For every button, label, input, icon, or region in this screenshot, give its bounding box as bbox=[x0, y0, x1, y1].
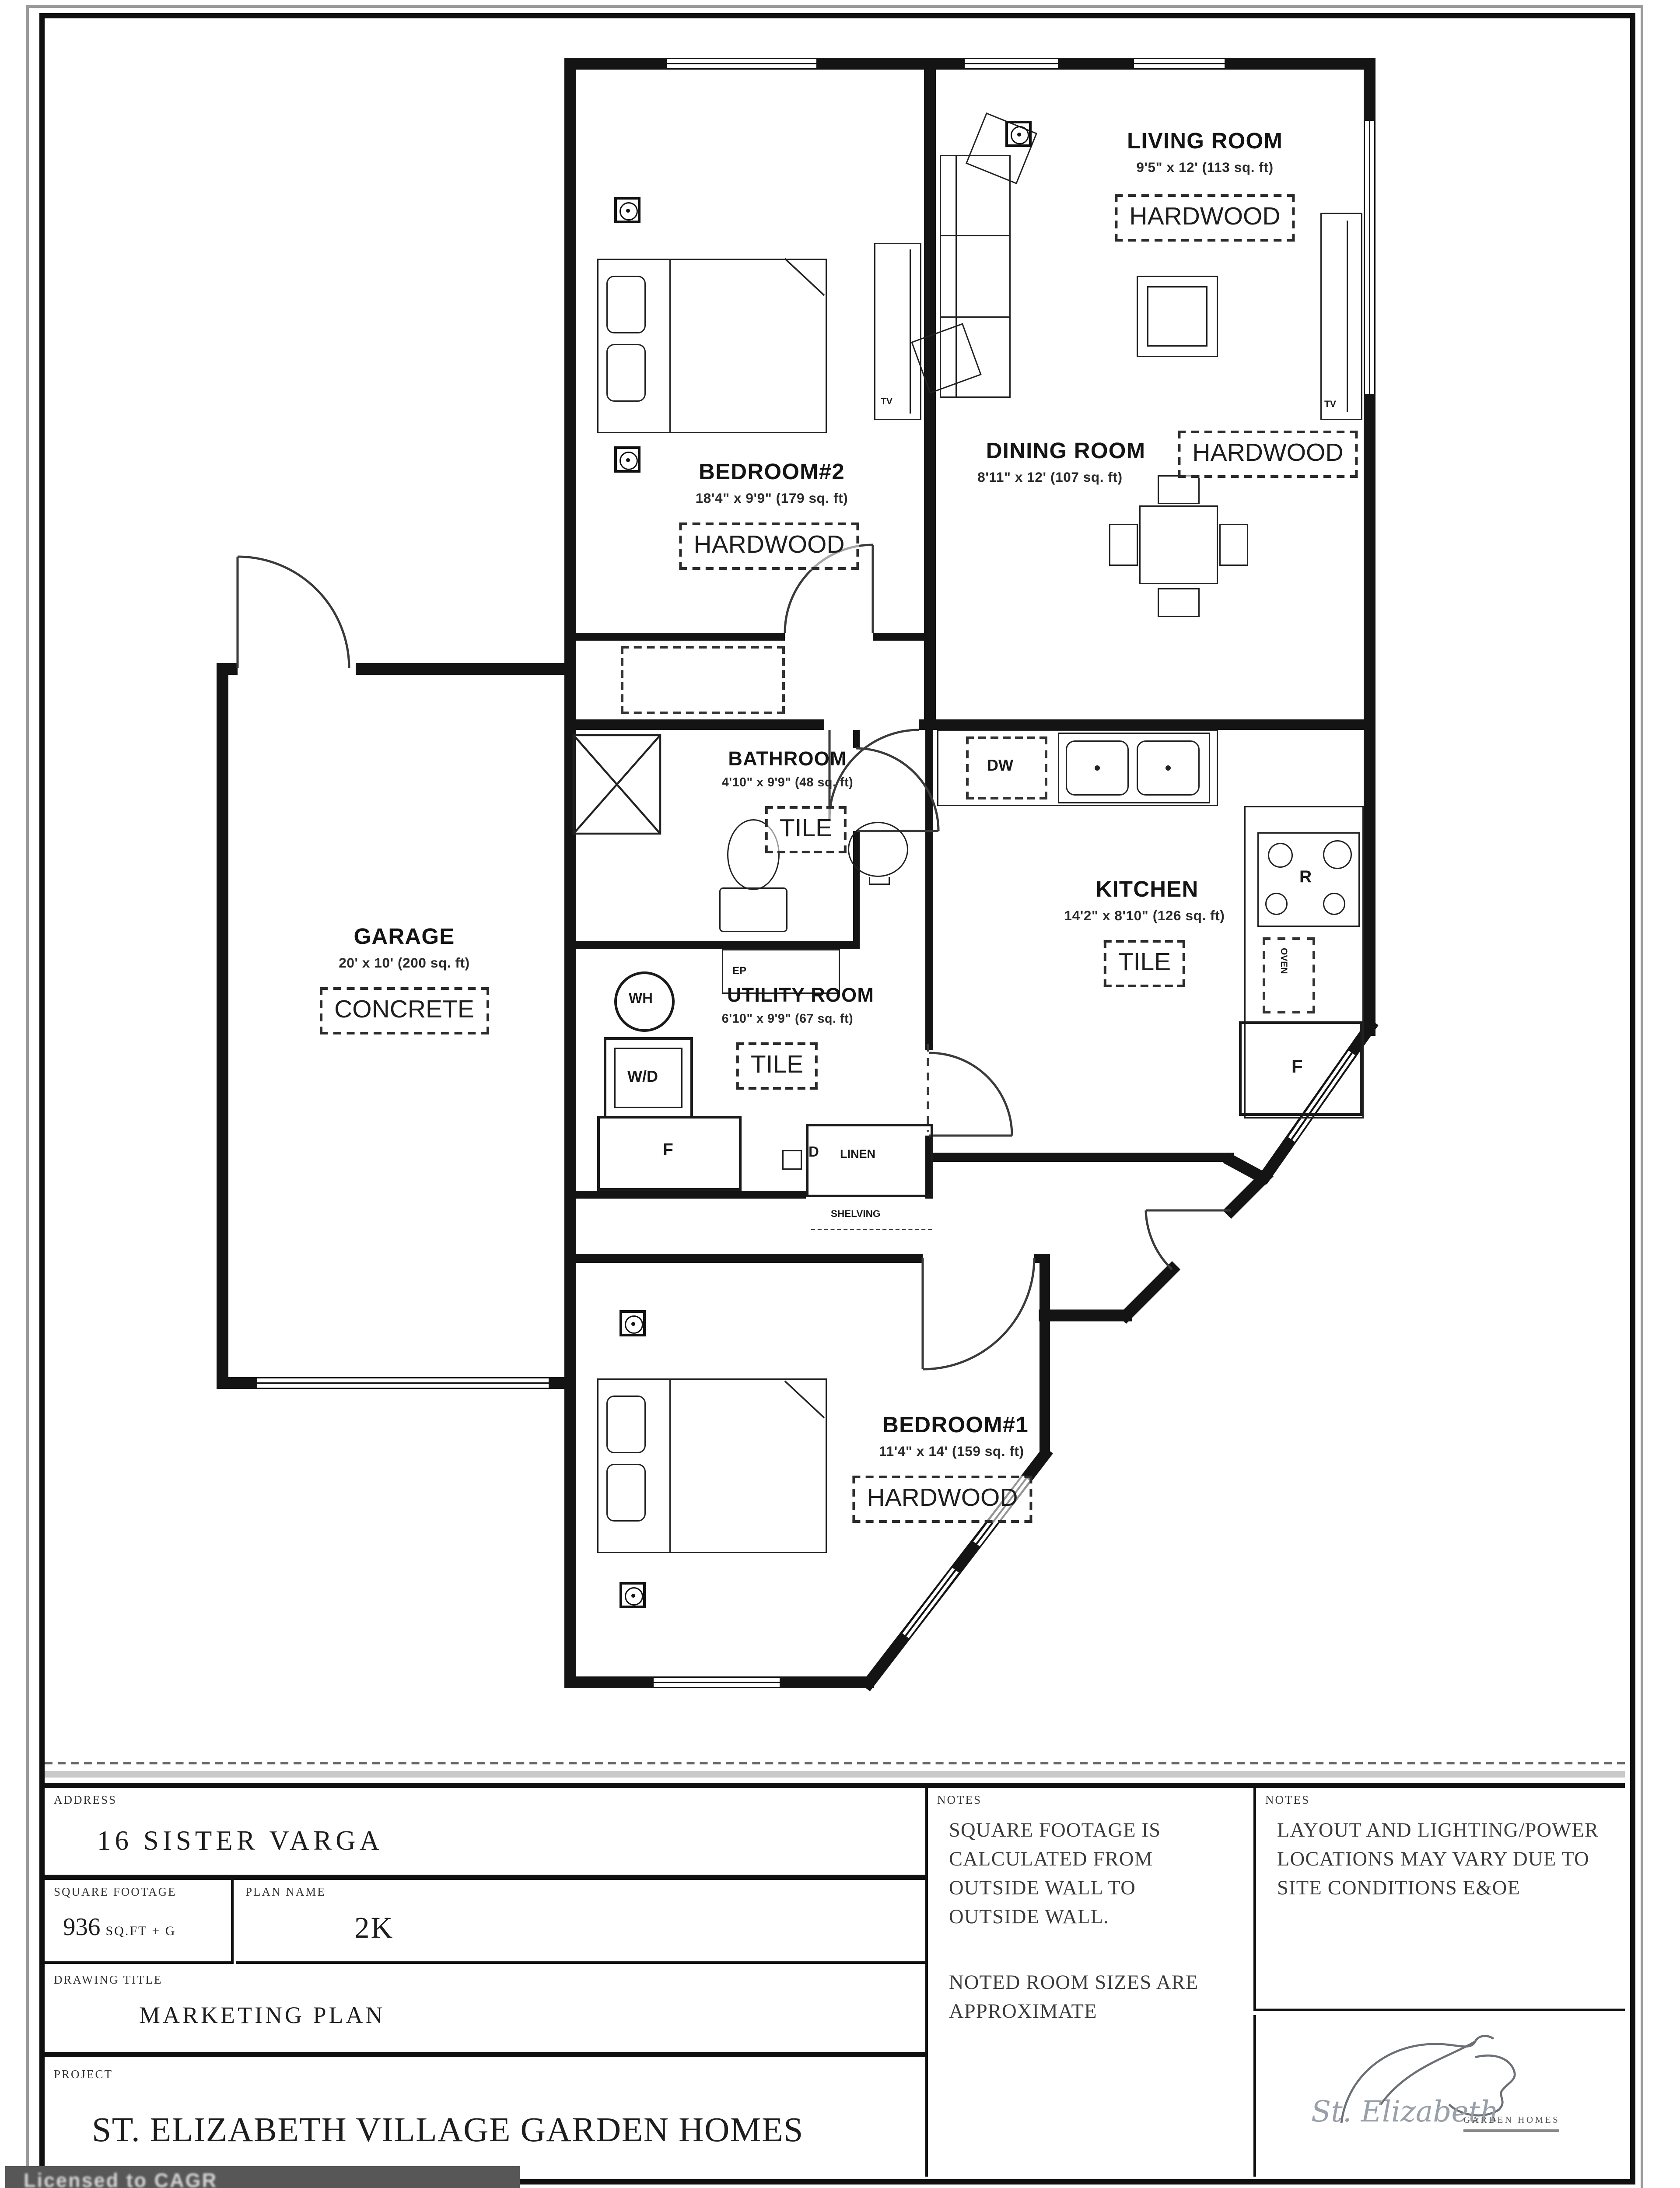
logo-sub: GARDEN HOMES bbox=[1463, 2114, 1560, 2132]
plan-name-cell: PLAN NAME 2K bbox=[236, 1880, 925, 1964]
ceiling-light-icon bbox=[614, 197, 640, 223]
plan-name-label: PLAN NAME bbox=[245, 1885, 326, 1898]
notes2-text: LAYOUT AND LIGHTING/POWER LOCATIONS MAY … bbox=[1277, 1817, 1608, 1904]
coffee-table-inner bbox=[1147, 286, 1207, 347]
room-name-living: LIVING ROOM bbox=[1127, 129, 1283, 155]
room-dims-living: 9'5" x 12' (113 sq. ft) bbox=[1136, 160, 1273, 176]
project-value: ST. ELIZABETH VILLAGE GARDEN HOMES bbox=[92, 2109, 804, 2150]
floor-type-bathroom: TILE bbox=[765, 806, 847, 854]
bath-sink bbox=[848, 822, 908, 877]
floor-type-utility: TILE bbox=[736, 1042, 818, 1090]
bed-line bbox=[669, 259, 671, 433]
ceiling-light-icon bbox=[619, 1582, 646, 1608]
room-dims-bathroom: 4'10" x 9'9" (48 sq. ft) bbox=[722, 776, 854, 790]
closet bbox=[621, 646, 785, 714]
notes1-text-a: SQUARE FOOTAGE IS CALCULATED FROM OUTSID… bbox=[949, 1817, 1227, 1932]
ceiling-light-icon bbox=[1005, 121, 1032, 147]
notes-cell-2: NOTES LAYOUT AND LIGHTING/POWER LOCATION… bbox=[1253, 1788, 1625, 2011]
separator-dashes bbox=[45, 1762, 1625, 1764]
bath-sink-tap bbox=[869, 877, 890, 885]
notes2-label: NOTES bbox=[1265, 1793, 1310, 1806]
notes-cell-1: NOTES SQUARE FOOTAGE IS CALCULATED FROM … bbox=[925, 1788, 1253, 2177]
floor-type-bedroom1: HARDWOOD bbox=[852, 1476, 1032, 1523]
dishwasher-label: DW bbox=[987, 756, 1013, 775]
room-name-bathroom: BATHROOM bbox=[728, 748, 847, 771]
oven-label: OVEN bbox=[1278, 948, 1288, 974]
room-dims-dining: 8'11" x 12' (107 sq. ft) bbox=[977, 470, 1123, 486]
bed-line bbox=[669, 1378, 671, 1553]
tv-label: TV bbox=[881, 398, 892, 407]
sink-drain bbox=[1165, 765, 1171, 771]
sqft-suffix: SQ.FT + G bbox=[106, 1925, 176, 1939]
room-name-dining: DINING ROOM bbox=[986, 438, 1146, 465]
dining-table bbox=[1139, 505, 1218, 584]
dining-chair bbox=[1219, 524, 1248, 566]
drawing-title-cell: DRAWING TITLE MARKETING PLAN bbox=[45, 1967, 925, 2057]
floor-type-bedroom2: HARDWOOD bbox=[679, 522, 859, 570]
sqft-cell: SQUARE FOOTAGE 936 SQ.FT + G bbox=[45, 1880, 234, 1964]
pillow bbox=[606, 1396, 646, 1453]
address-label: ADDRESS bbox=[54, 1793, 117, 1806]
floor-type-kitchen: TILE bbox=[1104, 940, 1185, 988]
burner bbox=[1265, 893, 1288, 915]
room-name-utility: UTILITY ROOM bbox=[727, 985, 874, 1007]
burner bbox=[1323, 840, 1352, 869]
dining-chair bbox=[1158, 588, 1200, 617]
tv-cabinet bbox=[1320, 213, 1362, 420]
address-cell: ADDRESS 16 SISTER VARGA bbox=[45, 1788, 925, 1880]
burner bbox=[1268, 843, 1293, 868]
tv-cabinet-line bbox=[910, 249, 911, 414]
pillow bbox=[606, 276, 646, 333]
toilet-tank bbox=[719, 887, 787, 932]
logo-cell: St. Elizabeth GARDEN HOMES bbox=[1253, 2015, 1625, 2177]
linen-closet bbox=[806, 1124, 933, 1197]
shelf-line bbox=[811, 1229, 932, 1230]
dryer-outlet bbox=[782, 1150, 802, 1170]
room-name-garage: GARAGE bbox=[353, 924, 455, 950]
range-label: R bbox=[1299, 866, 1312, 886]
dining-chair bbox=[1158, 475, 1200, 504]
sqft-label: SQUARE FOOTAGE bbox=[54, 1885, 177, 1898]
ep-label: EP bbox=[732, 965, 746, 977]
ceiling-light-icon bbox=[614, 446, 640, 473]
floor-type-garage: CONCRETE bbox=[320, 987, 489, 1035]
watermark-text: Licensed to CAGR bbox=[5, 2166, 520, 2188]
room-dims-bedroom2: 18'4" x 9'9" (179 sq. ft) bbox=[696, 491, 848, 507]
tv-cabinet bbox=[874, 243, 921, 420]
room-dims-kitchen: 14'2" x 8'10" (126 sq. ft) bbox=[1064, 908, 1225, 924]
linen-label: LINEN bbox=[840, 1147, 875, 1161]
project-label: PROJECT bbox=[54, 2067, 113, 2080]
fridge-label: F bbox=[1291, 1055, 1303, 1076]
wh-label: WH bbox=[629, 991, 653, 1007]
drawing-title-value: MARKETING PLAN bbox=[139, 2002, 385, 2029]
watermark-bar: Licensed to CAGR bbox=[5, 2166, 520, 2188]
shelving-label: SHELVING bbox=[831, 1208, 880, 1220]
notes1-label: NOTES bbox=[937, 1793, 982, 1806]
drawing-title-label: DRAWING TITLE bbox=[54, 1973, 163, 1986]
pillow bbox=[606, 1464, 646, 1522]
tv-cabinet-line bbox=[1347, 221, 1348, 412]
tv-label: TV bbox=[1324, 400, 1336, 410]
separator-band bbox=[45, 1771, 1625, 1778]
room-dims-garage: 20' x 10' (200 sq. ft) bbox=[339, 956, 470, 971]
plan-name-value: 2K bbox=[354, 1911, 394, 1946]
room-name-bedroom2: BEDROOM#2 bbox=[699, 459, 845, 486]
sink-drain bbox=[1095, 765, 1100, 771]
room-name-bedroom1: BEDROOM#1 bbox=[882, 1413, 1029, 1439]
sofa-cushion-line bbox=[940, 316, 1011, 318]
wd-label: W/D bbox=[627, 1067, 658, 1086]
floor-type-dining: HARDWOOD bbox=[1178, 431, 1358, 478]
floor-plan: TV TV DW R OVE bbox=[0, 0, 1680, 1785]
freezer-label: F bbox=[663, 1140, 673, 1159]
ceiling-light-icon bbox=[619, 1310, 646, 1336]
room-dims-utility: 6'10" x 9'9" (67 sq. ft) bbox=[722, 1012, 854, 1027]
project-cell: PROJECT ST. ELIZABETH VILLAGE GARDEN HOM… bbox=[45, 2062, 925, 2177]
title-block: ADDRESS 16 SISTER VARGA SQUARE FOOTAGE 9… bbox=[45, 1783, 1625, 2171]
notes1-text-b: NOTED ROOM SIZES ARE APPROXIMATE bbox=[949, 1969, 1227, 2027]
pillow bbox=[606, 344, 646, 402]
address-value: 16 SISTER VARGA bbox=[97, 1825, 383, 1858]
oven bbox=[1263, 937, 1315, 1013]
room-name-kitchen: KITCHEN bbox=[1095, 877, 1198, 903]
scanned-floor-plan-page: TV TV DW R OVE bbox=[0, 0, 1680, 2188]
burner bbox=[1323, 893, 1345, 915]
room-dims-bedroom1: 11'4" x 14' (159 sq. ft) bbox=[879, 1444, 1024, 1460]
dining-chair bbox=[1109, 524, 1138, 566]
sqft-value: 936 bbox=[63, 1914, 101, 1942]
sofa-cushion-line bbox=[940, 235, 1011, 236]
floor-type-living: HARDWOOD bbox=[1115, 194, 1295, 242]
